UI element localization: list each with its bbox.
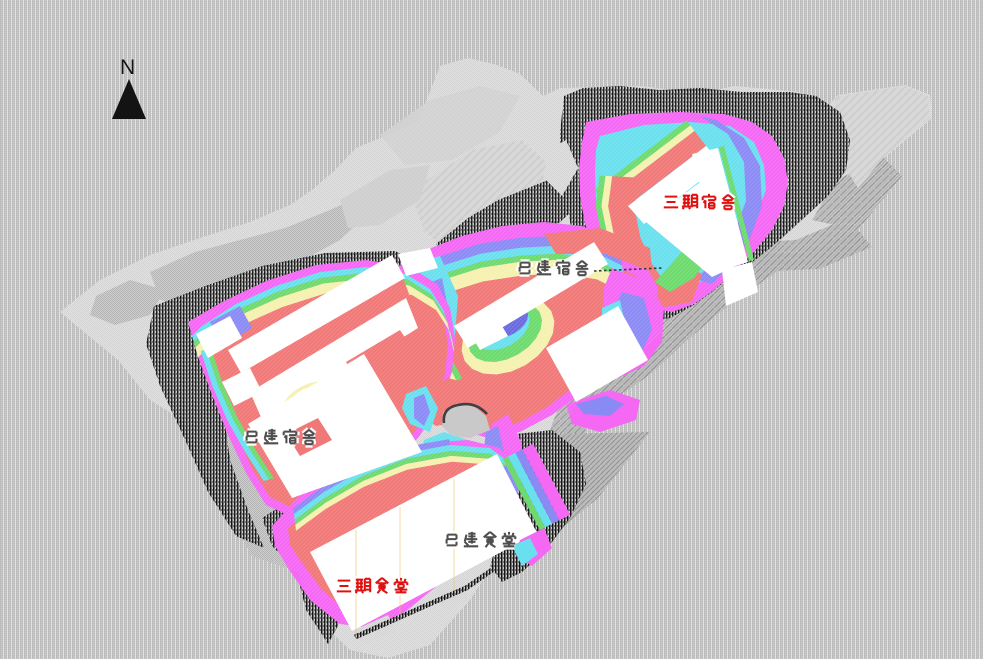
svg-text:N: N — [120, 56, 135, 79]
